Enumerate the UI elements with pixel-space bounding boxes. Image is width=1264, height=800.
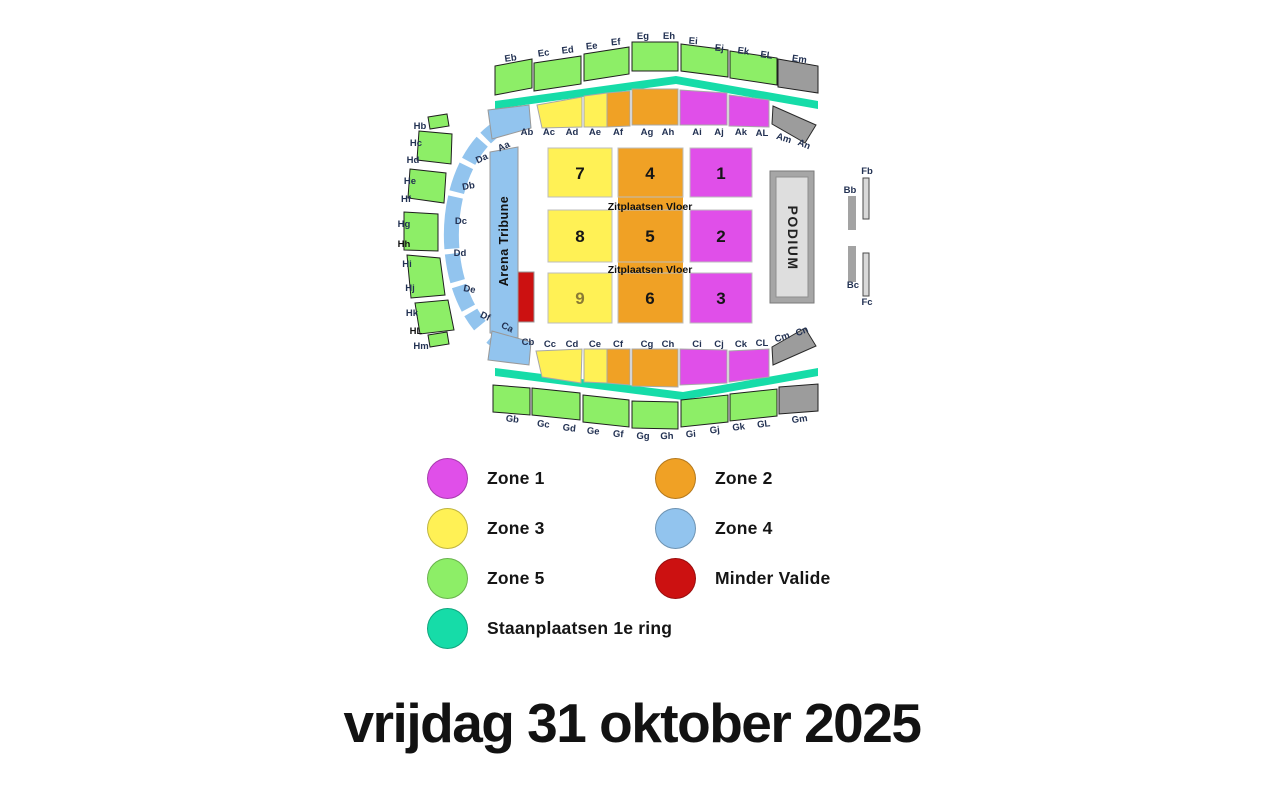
section-label-dd: Dd bbox=[454, 248, 467, 259]
floor-block-5-label: 5 bbox=[645, 227, 654, 246]
section-label-bc: Bc bbox=[847, 280, 859, 291]
legend-swatch-zone-2 bbox=[655, 458, 696, 499]
section-label-dc: Dc bbox=[455, 216, 467, 227]
section-label-ed: Ed bbox=[561, 44, 575, 56]
section-label-hg: Hg bbox=[398, 219, 411, 230]
floor-block-7-label: 7 bbox=[575, 164, 584, 183]
section-label-cb: Cb bbox=[522, 337, 535, 348]
section-label-ak: Ak bbox=[735, 127, 748, 138]
section-label-ab: Ab bbox=[521, 127, 534, 138]
section-label-hd: Hd bbox=[407, 155, 420, 166]
section-label-db: Db bbox=[461, 180, 476, 193]
legend-item-minder-valide: Minder Valide bbox=[655, 558, 830, 598]
venue-map: EbEcEdEeEfEgEhEiEjEkELEmAbAcAdAeAfAgAhAi… bbox=[0, 0, 1264, 455]
section-label-cl: CL bbox=[756, 338, 769, 349]
section-label-ac: Ac bbox=[543, 127, 555, 138]
section-label-gm: Gm bbox=[791, 413, 808, 426]
section-label-ce: Ce bbox=[589, 339, 601, 350]
legend-label-zone-1: Zone 1 bbox=[487, 468, 545, 489]
legend-item-zone-1: Zone 1 bbox=[427, 458, 655, 498]
section-label-bb: Bb bbox=[844, 185, 857, 196]
legend: Zone 1Zone 2Zone 3Zone 4Zone 5Minder Val… bbox=[427, 458, 830, 648]
section-hm[interactable] bbox=[428, 332, 449, 347]
section-label-cc: Cc bbox=[544, 339, 556, 350]
section-label-hj: Hj bbox=[405, 283, 415, 294]
section-label-ek: Ek bbox=[737, 45, 751, 57]
section-label-cf: Cf bbox=[613, 339, 624, 350]
section-bb[interactable] bbox=[848, 196, 856, 230]
section-label-hf: Hf bbox=[401, 194, 412, 205]
legend-label-zone-5: Zone 5 bbox=[487, 568, 545, 589]
section-label-gg: Gg bbox=[636, 431, 650, 442]
section-label-hc: Hc bbox=[410, 138, 422, 149]
legend-swatch-zone-3 bbox=[427, 508, 468, 549]
section-label-ag: Ag bbox=[641, 127, 654, 138]
legend-swatch-minder-valide bbox=[655, 558, 696, 599]
section-ak-al[interactable] bbox=[729, 95, 769, 127]
floor-block-3-label: 3 bbox=[716, 289, 725, 308]
section-label-gc: Gc bbox=[536, 418, 550, 430]
section-ae[interactable] bbox=[584, 93, 607, 127]
floor-block-8-label: 8 bbox=[575, 227, 584, 246]
section-label-fb: Fb bbox=[861, 166, 873, 177]
section-bc[interactable] bbox=[848, 246, 856, 282]
section-gc-gd[interactable] bbox=[532, 388, 580, 420]
section-label-gk: Gk bbox=[732, 421, 747, 434]
section-label-fc: Fc bbox=[861, 297, 872, 308]
section-label-he: He bbox=[404, 176, 416, 187]
section-label-cj: Cj bbox=[714, 339, 724, 350]
legend-swatch-zone-1 bbox=[427, 458, 468, 499]
section-label-ae: Ae bbox=[589, 127, 601, 138]
legend-label-zone-4: Zone 4 bbox=[715, 518, 773, 539]
section-label-hh: Hh bbox=[398, 239, 411, 250]
section-eg-eh[interactable] bbox=[632, 42, 678, 71]
legend-item-zone-2: Zone 2 bbox=[655, 458, 830, 498]
legend-swatch-zone-4 bbox=[655, 508, 696, 549]
section-label-ai: Ai bbox=[692, 127, 702, 138]
section-label-af: Af bbox=[613, 127, 624, 138]
venue-map-svg: EbEcEdEeEfEgEhEiEjEkELEmAbAcAdAeAfAgAhAi… bbox=[0, 0, 1264, 455]
section-eb[interactable] bbox=[495, 59, 532, 95]
section-label-ck: Ck bbox=[735, 339, 748, 350]
zitplaatsen-vloer-label-1: Zitplaatsen Vloer bbox=[608, 201, 693, 213]
section-label-hm: Hm bbox=[413, 341, 428, 352]
section-ai-aj[interactable] bbox=[680, 90, 727, 125]
section-label-de: De bbox=[462, 283, 476, 296]
section-cg-ch[interactable] bbox=[632, 349, 678, 387]
section-label-cg: Cg bbox=[641, 339, 654, 350]
section-ce[interactable] bbox=[584, 349, 607, 383]
section-label-gh: Gh bbox=[660, 431, 674, 442]
arena-tribune-label: Arena Tribune bbox=[497, 196, 511, 287]
section-label-em: Em bbox=[791, 53, 807, 66]
section-af[interactable] bbox=[607, 91, 630, 127]
section-cf[interactable] bbox=[607, 349, 630, 385]
section-ag-ah[interactable] bbox=[632, 89, 678, 125]
floor-block-6-label: 6 bbox=[645, 289, 654, 308]
legend-label-zone-3: Zone 3 bbox=[487, 518, 545, 539]
floor-block-9-label: 9 bbox=[575, 289, 584, 308]
section-ci-cj[interactable] bbox=[680, 349, 727, 385]
section-ec-ed[interactable] bbox=[534, 56, 581, 91]
section-minder-valide[interactable] bbox=[518, 272, 534, 322]
section-label-ci: Ci bbox=[692, 339, 702, 350]
legend-label-minder-valide: Minder Valide bbox=[715, 568, 830, 589]
section-label-eb: Eb bbox=[504, 52, 518, 65]
section-hb[interactable] bbox=[428, 114, 449, 129]
section-label-an: An bbox=[796, 137, 812, 152]
section-label-cd: Cd bbox=[566, 339, 579, 350]
legend-swatch-zone-5 bbox=[427, 558, 468, 599]
section-fc[interactable] bbox=[863, 253, 869, 296]
section-label-ch: Ch bbox=[662, 339, 675, 350]
section-label-gb: Gb bbox=[505, 413, 520, 426]
legend-item-zone-5: Zone 5 bbox=[427, 558, 655, 598]
section-label-al: AL bbox=[756, 128, 769, 139]
legend-item-zone-4: Zone 4 bbox=[655, 508, 830, 548]
section-gk-gl[interactable] bbox=[730, 389, 777, 421]
legend-item-zone-3: Zone 3 bbox=[427, 508, 655, 548]
section-label-hl: HL bbox=[410, 326, 423, 337]
section-label-gf: Gf bbox=[613, 429, 625, 441]
section-label-ge: Ge bbox=[586, 425, 600, 437]
section-label-ee: Ee bbox=[585, 40, 598, 52]
section-label-hk: Hk bbox=[406, 308, 419, 319]
section-hc-hd[interactable] bbox=[417, 131, 452, 164]
section-fb[interactable] bbox=[863, 178, 869, 219]
floor-block-2-label: 2 bbox=[716, 227, 725, 246]
section-label-ei: Ei bbox=[688, 36, 698, 48]
legend-item-staanplaatsen-1e-ring: Staanplaatsen 1e ring bbox=[427, 608, 655, 648]
section-label-eg: Eg bbox=[637, 31, 650, 42]
section-ck-cl[interactable] bbox=[729, 349, 769, 382]
section-label-ad: Ad bbox=[566, 127, 579, 138]
legend-swatch-staanplaatsen-1e-ring bbox=[427, 608, 468, 649]
legend-label-staanplaatsen-1e-ring: Staanplaatsen 1e ring bbox=[487, 618, 672, 639]
section-label-ec: Ec bbox=[537, 47, 550, 60]
section-gb[interactable] bbox=[493, 385, 530, 415]
section-label-ej: Ej bbox=[714, 43, 724, 55]
section-ge-gf[interactable] bbox=[583, 395, 629, 427]
event-date: vrijdag 31 oktober 2025 bbox=[0, 692, 1264, 754]
floor-block-4-label: 4 bbox=[645, 164, 655, 183]
section-label-ef: Ef bbox=[611, 37, 622, 49]
section-gm[interactable] bbox=[779, 384, 818, 414]
section-label-ah: Ah bbox=[662, 127, 675, 138]
legend-label-zone-2: Zone 2 bbox=[715, 468, 773, 489]
section-label-el: EL bbox=[760, 49, 774, 62]
section-label-gi: Gi bbox=[685, 429, 696, 441]
section-gi-gj[interactable] bbox=[681, 395, 728, 427]
section-label-aj: Aj bbox=[714, 127, 724, 138]
zitplaatsen-vloer-label-2: Zitplaatsen Vloer bbox=[608, 264, 693, 276]
section-label-hi: Hi bbox=[402, 259, 412, 270]
section-label-hb: Hb bbox=[414, 121, 427, 132]
section-label-gj: Gj bbox=[709, 425, 720, 437]
section-label-gl: GL bbox=[756, 418, 771, 431]
section-gg-gh[interactable] bbox=[632, 401, 678, 429]
section-label-gd: Gd bbox=[562, 422, 576, 434]
podium-label: PODIUM bbox=[785, 206, 801, 271]
floor-block-1-label: 1 bbox=[716, 164, 725, 183]
section-label-eh: Eh bbox=[663, 31, 676, 42]
